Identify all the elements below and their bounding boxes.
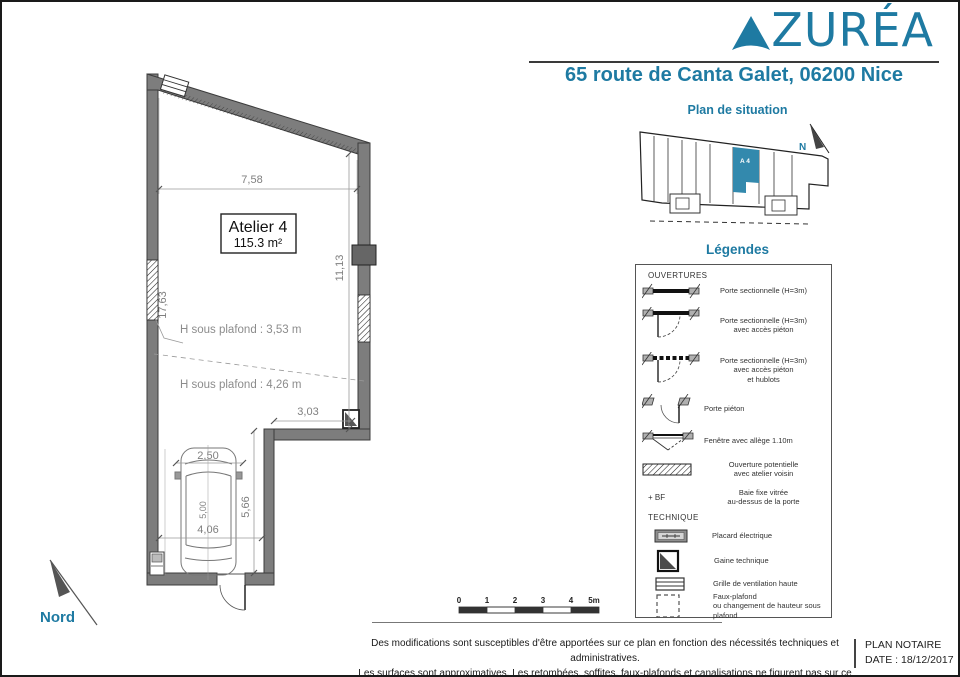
brand-name: ZURÉA <box>771 8 934 52</box>
pedestrian-door <box>217 574 245 610</box>
recess-wall <box>264 429 370 440</box>
plan-sheet: ZURÉA 65 route de Canta Galet, 06200 Nic… <box>0 0 960 677</box>
azurea-logo: ZURÉA <box>731 8 934 52</box>
technical-duct-symbol <box>343 410 359 428</box>
room-label-box: Atelier 4 115.3 m² <box>221 214 296 253</box>
scale-labels: 0 1 2 3 4 5m <box>457 596 600 605</box>
top-wall-hatch <box>161 87 358 154</box>
minimap-north-label: N <box>799 142 806 153</box>
dim-left-height: 17,63 <box>157 291 169 319</box>
footer-divider <box>854 639 856 668</box>
dim-parking-length: 5,00 <box>198 501 208 519</box>
electrical-closet-symbol <box>150 552 164 575</box>
door-swing-arc <box>220 585 245 610</box>
sectional-door-pedestrian-icon <box>642 307 700 343</box>
document-date: DATE : 18/12/2017 <box>865 653 954 668</box>
dim-top-width: 7,58 <box>241 174 262 186</box>
unit-label: A 4 <box>740 158 750 165</box>
dim-recess-width: 3,03 <box>297 406 318 418</box>
car-symbol <box>175 448 242 575</box>
legend-item: Porte sectionnelle (H=3m) avec accès pié… <box>642 349 827 391</box>
situation-minimap: A 4 N <box>630 117 845 242</box>
legend-section-technical: TECHNIQUE <box>648 513 699 522</box>
disclaimer: Des modifications sont susceptibles d'êt… <box>358 636 852 677</box>
left-wall <box>147 74 158 585</box>
entrance-block <box>670 194 700 213</box>
document-type: PLAN NOTAIRE <box>865 638 954 653</box>
svg-text:4: 4 <box>569 596 574 605</box>
lower-right-wall <box>264 429 274 585</box>
legend-title: Légendes <box>630 242 845 257</box>
north-arrow-icon: Nord <box>40 560 97 626</box>
situation-plan-title: Plan de situation <box>630 103 845 117</box>
legend-item: Placard électrique <box>642 527 827 545</box>
legend-item: Faux-plafond ou changement de hauteur so… <box>642 594 827 618</box>
legend-item: Fenêtre avec allège 1.10m <box>642 428 827 454</box>
dim-lower-depth: 5,66 <box>240 496 252 517</box>
right-wall <box>358 143 370 440</box>
ventilation-grille-icon <box>642 577 713 591</box>
disclaimer-line-2: Les surfaces sont approximatives. Les re… <box>358 666 852 677</box>
disclaimer-line-1: Des modifications sont susceptibles d'êt… <box>358 636 852 666</box>
scale-bar: 0 1 2 3 4 5m <box>457 596 600 613</box>
footer-separator <box>372 622 722 623</box>
legend-item: Ouverture potentielle avec atelier voisi… <box>642 458 827 480</box>
pedestrian-door-icon <box>642 394 700 424</box>
parking-dashes <box>650 221 808 224</box>
sectional-door-icon <box>642 283 700 299</box>
document-type-block: PLAN NOTAIRE DATE : 18/12/2017 <box>865 638 954 668</box>
ceiling-height-1: H sous plafond : 3,53 m <box>180 324 301 336</box>
logo-triangle-icon <box>731 14 771 52</box>
room-name: Atelier 4 <box>229 219 288 236</box>
legend-item: + BF Baie fixe vitrée au-dessus de la po… <box>642 485 827 509</box>
technical-duct-icon <box>642 549 714 573</box>
legend-item: Porte sectionnelle (H=3m) avec accès pié… <box>642 305 827 345</box>
ceiling-height-2: H sous plafond : 4,26 m <box>180 379 301 391</box>
potential-opening-right <box>358 295 370 342</box>
dim-lower-width: 4,06 <box>197 524 218 536</box>
hatched-opening-icon <box>642 463 700 476</box>
entrance-block <box>765 196 797 215</box>
minimap-north-arrow-icon: N <box>799 124 829 153</box>
svg-text:1: 1 <box>485 596 490 605</box>
electrical-closet-icon <box>642 529 712 543</box>
window-sill-icon <box>642 430 700 452</box>
legend-item: Porte sectionnelle (H=3m) <box>642 281 827 301</box>
svg-text:2: 2 <box>513 596 518 605</box>
legend-item: Porte piéton <box>642 393 827 425</box>
fixed-glazing-symbol: + BF <box>642 493 700 502</box>
ceiling-change-line <box>154 354 364 381</box>
legend-item: Grille de ventilation haute <box>642 576 827 592</box>
column <box>352 245 376 265</box>
legend-section-openings: OUVERTURES <box>648 271 707 280</box>
floor-plan-drawing: Atelier 4 115.3 m² 7,58 11,13 17,63 H so… <box>2 2 632 677</box>
svg-text:5m: 5m <box>588 596 600 605</box>
dim-right-height: 11,13 <box>334 255 346 282</box>
north-label: Nord <box>40 609 75 626</box>
legend-box: OUVERTURES Porte sectionnelle (H=3m) <box>635 264 832 618</box>
sectional-door-pedestrian-portholes-icon <box>642 352 700 388</box>
svg-text:0: 0 <box>457 596 462 605</box>
legend-item: Gaine technique <box>642 548 827 574</box>
false-ceiling-icon <box>642 593 713 619</box>
bottom-wall-right <box>245 573 274 585</box>
svg-text:3: 3 <box>541 596 546 605</box>
room-area: 115.3 m² <box>234 236 282 250</box>
